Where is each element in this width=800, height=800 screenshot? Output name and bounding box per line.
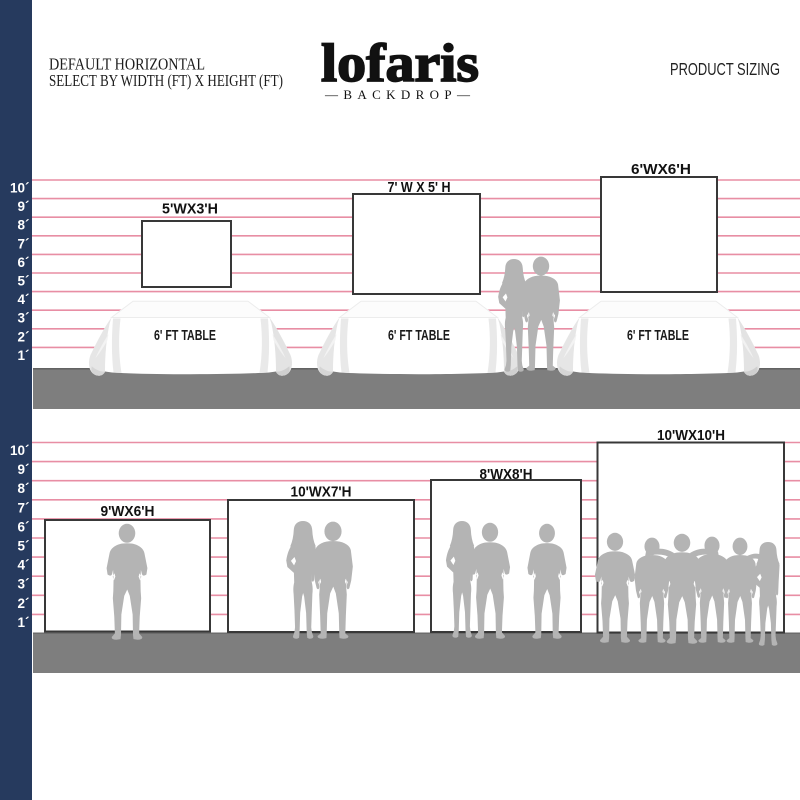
svg-text:7´: 7´ bbox=[17, 500, 29, 515]
svg-text:8´: 8´ bbox=[17, 481, 29, 496]
svg-text:1´: 1´ bbox=[17, 615, 29, 630]
svg-text:PRODUCT SIZING: PRODUCT SIZING bbox=[670, 59, 780, 79]
svg-text:7´: 7´ bbox=[17, 236, 29, 251]
svg-text:10'WX10'H: 10'WX10'H bbox=[657, 427, 725, 444]
svg-text:6´: 6´ bbox=[17, 519, 29, 534]
svg-text:7' W X 5' H: 7' W X 5' H bbox=[388, 179, 451, 196]
svg-text:1´: 1´ bbox=[17, 348, 29, 363]
svg-text:lofaris: lofaris bbox=[321, 33, 479, 93]
svg-text:6' FT TABLE: 6' FT TABLE bbox=[154, 328, 216, 344]
svg-text:4´: 4´ bbox=[17, 292, 29, 307]
svg-text:5´: 5´ bbox=[17, 274, 29, 289]
svg-text:8´: 8´ bbox=[17, 218, 29, 233]
svg-text:3´: 3´ bbox=[17, 577, 29, 592]
svg-text:3´: 3´ bbox=[17, 311, 29, 326]
svg-text:10´: 10´ bbox=[10, 181, 30, 196]
svg-text:8'WX8'H: 8'WX8'H bbox=[480, 466, 533, 483]
svg-text:4´: 4´ bbox=[17, 558, 29, 573]
svg-text:5'WX3'H: 5'WX3'H bbox=[162, 201, 218, 218]
svg-text:SELECT BY WIDTH (FT) X HEIGHT: SELECT BY WIDTH (FT) X HEIGHT (FT) bbox=[49, 71, 283, 90]
svg-text:6'WX6'H: 6'WX6'H bbox=[631, 161, 691, 178]
svg-text:2´: 2´ bbox=[17, 329, 29, 344]
svg-text:2´: 2´ bbox=[17, 596, 29, 611]
svg-text:—BACKDROP—: —BACKDROP— bbox=[324, 87, 475, 102]
svg-text:9'WX6'H: 9'WX6'H bbox=[101, 503, 155, 520]
svg-text:6' FT TABLE: 6' FT TABLE bbox=[388, 328, 450, 344]
svg-text:6´: 6´ bbox=[17, 255, 29, 270]
svg-text:10'WX7'H: 10'WX7'H bbox=[291, 484, 352, 501]
svg-text:9´: 9´ bbox=[17, 462, 29, 477]
svg-text:5´: 5´ bbox=[17, 539, 29, 554]
svg-text:10´: 10´ bbox=[10, 443, 30, 458]
svg-text:9´: 9´ bbox=[17, 199, 29, 214]
svg-text:6' FT TABLE: 6' FT TABLE bbox=[627, 328, 689, 344]
